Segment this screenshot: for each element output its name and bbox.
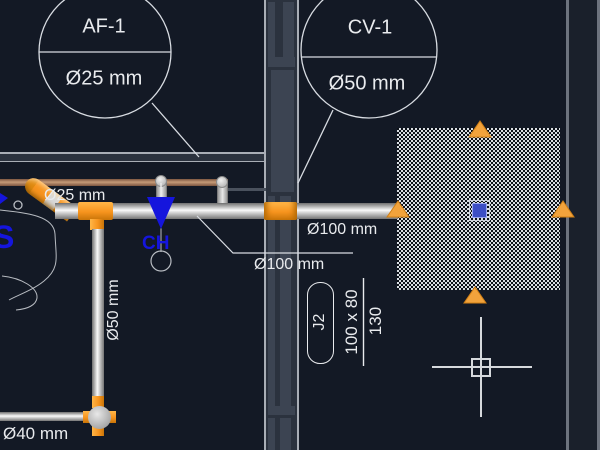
- cad-viewport: AF-1 Ø25 mm CV-1 Ø50 mm Ø25 mm Ø100 mm Ø…: [0, 0, 600, 450]
- crosshair-cursor: [0, 0, 600, 450]
